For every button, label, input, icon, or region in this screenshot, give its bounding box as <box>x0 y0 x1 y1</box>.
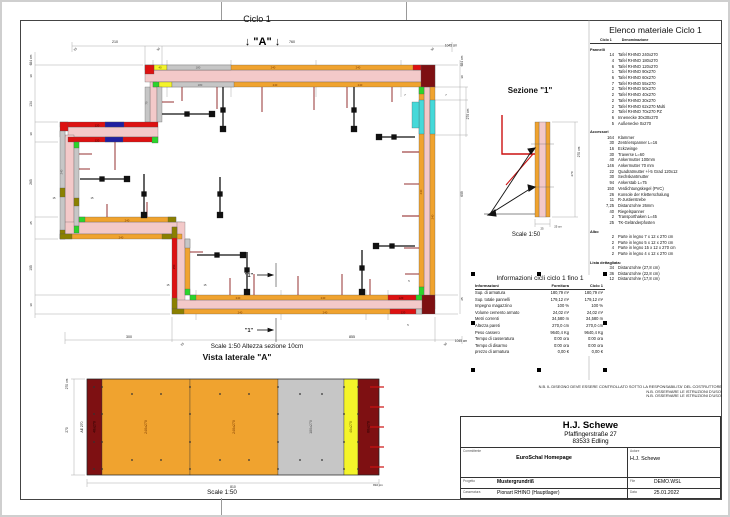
dim-label: 5 <box>408 279 410 283</box>
info-row: Altezza pareti270,0 cm270,0 cm <box>475 323 605 330</box>
field-casseratura: Casseratura Pionart RHINO (Hauptlager) <box>461 489 628 500</box>
dim-label: 810 cm <box>373 483 383 487</box>
vista-panel-label: 60x270 <box>367 421 371 433</box>
dim-label: 240 <box>431 214 435 219</box>
field-data: Data 25.01.2022 <box>628 489 720 500</box>
dim-label: 1045 cm <box>455 339 468 343</box>
dim-label: 30 <box>29 74 33 78</box>
dim-label: "1" <box>245 328 254 334</box>
info-col-fornitura: Fornitura <box>531 283 569 288</box>
autore-value: H.J. Schewe <box>630 453 718 462</box>
dim-label: 684 cm <box>460 55 464 66</box>
dim-label: 240 <box>271 66 276 70</box>
anchor-ties <box>79 87 419 295</box>
dim-label: 270 cm <box>466 108 470 119</box>
material-list-title: Elenco materiale Ciclo 1 <box>590 25 721 35</box>
props[interactable] <box>80 87 415 295</box>
dim-label: 7 <box>445 93 447 97</box>
dim-label: 30 <box>156 46 161 51</box>
selection-handle[interactable] <box>603 272 607 276</box>
selection-handle[interactable] <box>471 368 475 372</box>
vista-scale-label: Scale 1:50 <box>192 489 252 496</box>
dim-label: 240 <box>60 169 64 174</box>
section-a-marker: ↓ "A" ↓ <box>215 36 310 48</box>
dim-label: 15 <box>204 283 207 287</box>
dim-label: 270 <box>65 427 69 433</box>
info-row: Peso cassero9640,4 Kg9640,4 Kg <box>475 330 605 337</box>
info-row: Impegno magazzino100 %100 % <box>475 303 605 310</box>
info-row: Sup. totale pannelli179,12 m²179,12 m² <box>475 297 605 304</box>
dim-label: 40 <box>158 66 162 70</box>
company-address-line1: Pfaffingerstraße 27 <box>461 431 720 438</box>
company-name: H.J. Schewe <box>461 417 720 431</box>
drawing-sheet: 40x270240x270240x270180x27040x27060x270 <box>0 0 730 517</box>
title-block: H.J. Schewe Pfaffingerstraße 27 83533 Ed… <box>460 416 721 499</box>
cycle-info-title: Informazioni cicli ciclo 1 fino 1 <box>475 275 605 282</box>
vista-laterale-title: Vista laterale "A" <box>152 352 322 362</box>
dim-label: 240 <box>273 83 278 87</box>
selection-handle[interactable] <box>603 368 607 372</box>
progetto-label: Progetto <box>463 479 491 488</box>
vista-drawing[interactable]: 40x270240x270240x270180x27040x27060x270 <box>71 379 384 487</box>
dim-label: 25 <box>540 227 544 231</box>
data-value: 25.01.2022 <box>654 490 679 500</box>
dim-label: 240 <box>238 310 243 314</box>
dim-label: 1045 cm <box>445 44 458 48</box>
dim-label: 180 <box>196 66 201 70</box>
field-progetto: Progetto Mustergrundriß <box>461 478 628 488</box>
file-value: DEMO.WSL <box>654 479 681 488</box>
field-file: File DEMO.WSL <box>628 478 720 488</box>
dim-label: 134 <box>29 101 33 107</box>
info-row: Tempo di disarmo0:00 ora0:00 ora <box>475 343 605 350</box>
dim-label: 25 cm <box>554 225 562 229</box>
sezione-scale-label: Scale 1:50 <box>500 232 552 238</box>
field-autore: Autore H.J. Schewe <box>628 448 720 477</box>
sezione-title: Sezione "1" <box>490 86 570 95</box>
dim-label: 240 <box>119 236 124 240</box>
info-col-ciclo1: Ciclo 1 <box>569 283 603 288</box>
dim-label: 684 cm <box>29 54 33 65</box>
plan-title: Ciclo 1 <box>202 14 312 24</box>
info-row: Metri correnti34,580 m34,580 m <box>475 316 605 323</box>
material-col-name: Denominazione <box>622 38 649 42</box>
cycle-info-table[interactable]: Informazioni cicli ciclo 1 fino 1 Inform… <box>475 275 605 356</box>
dim-label: 180 <box>198 83 203 87</box>
note-line: N.B. OSSERVARE LE ISTRUZIONI D'USO! <box>422 394 722 399</box>
dim-label: 7 <box>404 93 406 97</box>
dim-label: 240 <box>419 189 423 194</box>
selection-handle[interactable] <box>471 272 475 276</box>
dim-label: 240 <box>236 296 241 300</box>
dim-label: 120 <box>401 310 406 314</box>
dim-label: 210 <box>112 40 118 44</box>
dim-label: 240 <box>125 219 130 223</box>
dim-label: 270 cm <box>577 146 581 157</box>
dim-label: 150 <box>172 264 176 269</box>
material-item: 12Distanzrohre (17,8 cm) <box>590 276 721 282</box>
dim-label: "1" <box>245 273 254 279</box>
casseratura-label: Casseratura <box>463 490 491 500</box>
dim-label: 5 <box>407 323 409 327</box>
dim-label: 609 <box>460 191 464 197</box>
dim-label: 300 <box>126 335 132 339</box>
dim-label: 855 <box>349 335 355 339</box>
info-row: Sup. di armatura180,79 m²180,79 m² <box>475 290 605 297</box>
dim-label: 240 <box>356 66 361 70</box>
dim-label: 70 <box>145 101 149 105</box>
dim-label: 240 <box>321 296 326 300</box>
casseratura-value: Pionart RHINO (Hauptlager) <box>497 490 560 500</box>
material-item: 25TK-Geländerpfosten <box>590 220 721 226</box>
info-row: prezzo di armatura0,00 €0,00 € <box>475 349 605 356</box>
committente-value: EuroSchal Homepage <box>463 453 625 461</box>
company-address-line2: 83533 Edling <box>461 438 720 445</box>
dim-label: 120 <box>95 124 100 128</box>
dim-label: 25 <box>73 46 78 51</box>
dim-label: 30 <box>430 46 435 51</box>
material-item: 2Parte in legno 4 x 12 x 270 cm <box>590 251 721 257</box>
field-committente: Committente EuroSchal Homepage <box>461 448 628 477</box>
material-col-qty: Ciclo 1 <box>600 38 612 42</box>
dim-label: 265 <box>29 179 33 185</box>
dim-label: 15 <box>53 196 56 200</box>
selection-handle[interactable] <box>537 368 541 372</box>
dim-label: 270 <box>570 171 574 176</box>
title-block-company: H.J. Schewe Pfaffingerstraße 27 83533 Ed… <box>461 417 720 448</box>
dim-label: 25 <box>29 221 33 225</box>
dim-label: 15 <box>167 283 170 287</box>
sezione-drawing[interactable] <box>484 115 578 227</box>
dim-label: 30 <box>443 341 448 346</box>
dim-label: 15 <box>91 196 94 200</box>
dim-label: AE 270 <box>80 421 84 432</box>
dim-label: 25 <box>460 297 464 301</box>
dim-label: 30 <box>29 132 33 136</box>
vista-panel-label: 180x270 <box>309 420 313 434</box>
selection-handle[interactable] <box>603 321 607 325</box>
info-row: Volume cemento armato24,02 m³24,02 m³ <box>475 310 605 317</box>
dim-label: 30 <box>29 303 33 307</box>
dim-label: 240 <box>323 310 328 314</box>
dim-label: 240 <box>358 83 363 87</box>
vista-panel-label: 240x270 <box>232 420 236 434</box>
dim-label: 120 <box>399 296 404 300</box>
material-list-header: Ciclo 1 Denominazione <box>590 38 721 44</box>
selection-handle[interactable] <box>537 272 541 276</box>
vista-panel-label: 40x270 <box>93 421 97 433</box>
info-row: Tempo di casseratura0:00 ora0:00 ora <box>475 336 605 343</box>
dim-label: 30 <box>460 75 464 79</box>
vista-panel-label: 40x270 <box>349 421 353 433</box>
dim-label: 105 <box>29 265 33 271</box>
plan-scale-note: Scale 1:50 Altezza sezione 10cm <box>177 343 337 350</box>
cycle-info-header: Informazioni Fornitura Ciclo 1 <box>475 283 605 290</box>
disclaimer-notes: N.B. IL DISEGNO DEVE ESSERE CONTROLLATO … <box>422 385 722 399</box>
data-label: Data <box>630 490 648 500</box>
material-list[interactable]: Elenco materiale Ciclo 1 Ciclo 1 Denomin… <box>590 25 721 282</box>
dim-label: 270 cm <box>65 378 69 389</box>
selection-handle[interactable] <box>471 321 475 325</box>
progetto-value: Mustergrundriß <box>497 479 534 488</box>
vista-panel-label: 240x270 <box>144 420 148 434</box>
file-label: File <box>630 479 648 488</box>
dim-label: 120 <box>95 139 100 143</box>
material-item: 5Außenecke 0x270 <box>590 121 721 127</box>
info-col-informazioni: Informazioni <box>475 283 531 288</box>
